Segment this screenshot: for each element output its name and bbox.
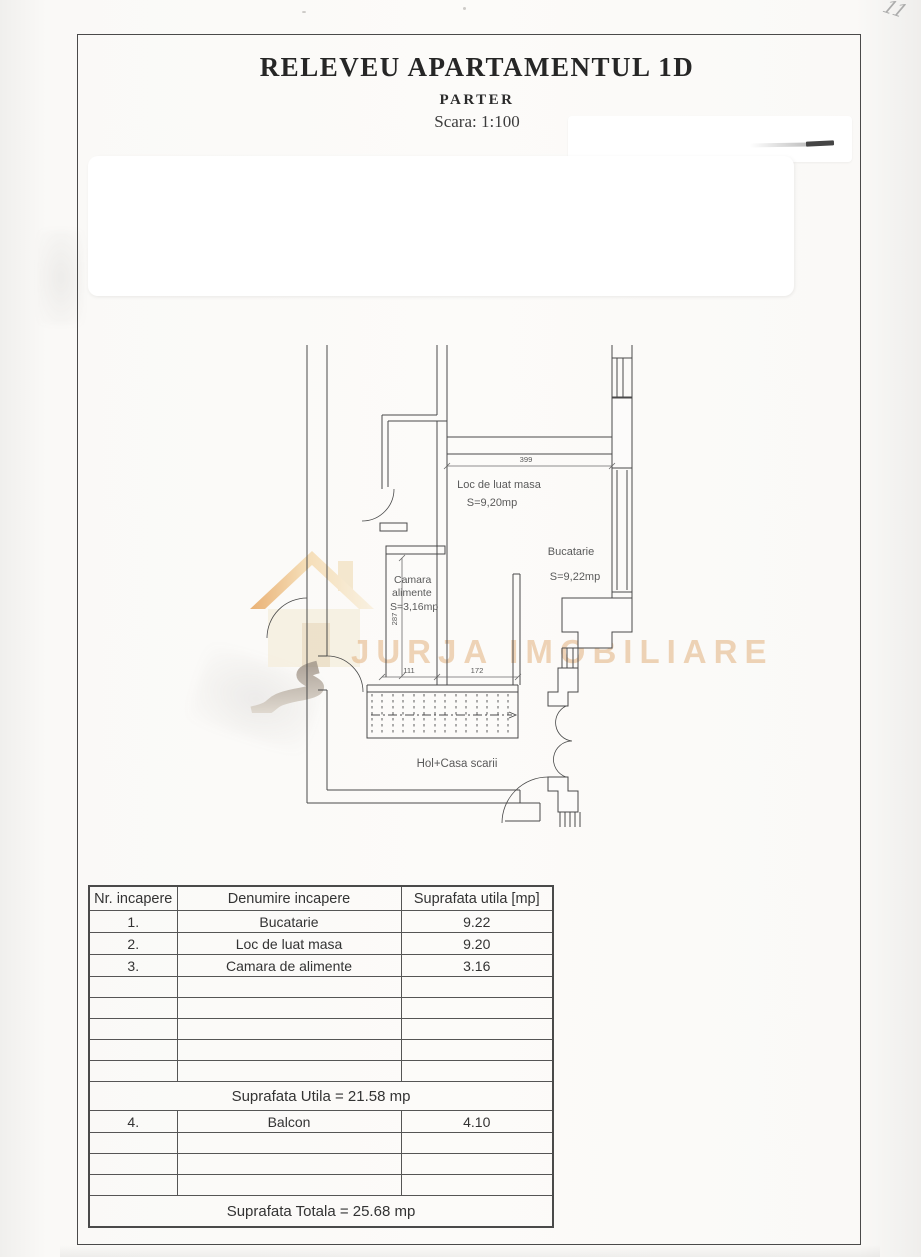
cell-name: Camara de alimente bbox=[177, 955, 401, 977]
page-subtitle: PARTER bbox=[77, 92, 877, 109]
room-area-pantry: S=3,16mp bbox=[390, 601, 438, 613]
scan-speck bbox=[463, 7, 466, 10]
handwritten-page-number: 11 bbox=[879, 0, 909, 22]
table-row: 3. Camara de alimente 3.16 bbox=[89, 955, 553, 977]
room-label-hall: Hol+Casa scarii bbox=[417, 758, 498, 770]
header-name: Denumire incapere bbox=[177, 886, 401, 911]
room-label-pantry-line1: Camara bbox=[394, 574, 432, 586]
table-header-row: Nr. incapere Denumire incapere Suprafata… bbox=[89, 886, 553, 911]
cell-name: Bucatarie bbox=[177, 911, 401, 933]
plan-walls bbox=[267, 345, 632, 827]
dim-label-287: 287 bbox=[390, 613, 399, 626]
room-label-kitchen: Bucatarie bbox=[548, 546, 594, 558]
useful-area-total: Suprafata Utila = 21.58 mp bbox=[89, 1082, 553, 1111]
table-row: 1. Bucatarie 9.22 bbox=[89, 911, 553, 933]
room-label-pantry-line2: alimente bbox=[392, 587, 432, 599]
area-summary-table: Nr. incapere Denumire incapere Suprafata… bbox=[88, 885, 554, 1228]
header-nr: Nr. incapere bbox=[89, 886, 177, 911]
cell-nr: 3. bbox=[89, 955, 177, 977]
table-empty-row bbox=[89, 1154, 553, 1175]
useful-area-row: Suprafata Utila = 21.58 mp bbox=[89, 1082, 553, 1111]
whiteout-patch bbox=[88, 156, 794, 296]
table-empty-row bbox=[89, 1175, 553, 1196]
scanned-floor-plan-page: 11 RELEVEU APARTAMENTUL 1D PARTER Scara:… bbox=[0, 0, 921, 1257]
grand-total-row: Suprafata Totala = 25.68 mp bbox=[89, 1196, 553, 1228]
cell-name: Loc de luat masa bbox=[177, 933, 401, 955]
cell-name: Balcon bbox=[177, 1111, 401, 1133]
room-label-dining: Loc de luat masa bbox=[457, 479, 542, 491]
table-empty-row bbox=[89, 1061, 553, 1082]
dim-label-172: 172 bbox=[471, 666, 484, 675]
grand-total: Suprafata Totala = 25.68 mp bbox=[89, 1196, 553, 1228]
dim-label-399: 399 bbox=[520, 455, 533, 464]
page-title: RELEVEU APARTAMENTUL 1D bbox=[77, 52, 877, 83]
cell-nr: 2. bbox=[89, 933, 177, 955]
table-empty-row bbox=[89, 1040, 553, 1061]
floor-plan-drawing: Loc de luat masa S=9,20mp Bucatarie S=9,… bbox=[250, 335, 670, 835]
table-row: 2. Loc de luat masa 9.20 bbox=[89, 933, 553, 955]
room-area-dining: S=9,20mp bbox=[467, 497, 517, 509]
cell-nr: 4. bbox=[89, 1111, 177, 1133]
scan-smudge bbox=[60, 1245, 880, 1257]
balcony-row: 4. Balcon 4.10 bbox=[89, 1111, 553, 1133]
table-empty-row bbox=[89, 998, 553, 1019]
room-area-kitchen: S=9,22mp bbox=[550, 571, 600, 583]
table-empty-row bbox=[89, 977, 553, 998]
cell-nr: 1. bbox=[89, 911, 177, 933]
scan-speck bbox=[302, 11, 306, 13]
table-empty-row bbox=[89, 1019, 553, 1040]
cell-area: 3.16 bbox=[401, 955, 553, 977]
cell-area: 4.10 bbox=[401, 1111, 553, 1133]
cell-area: 9.22 bbox=[401, 911, 553, 933]
table-empty-row bbox=[89, 1133, 553, 1154]
header-area: Suprafata utila [mp] bbox=[401, 886, 553, 911]
cell-area: 9.20 bbox=[401, 933, 553, 955]
dim-label-111: 111 bbox=[403, 666, 415, 675]
